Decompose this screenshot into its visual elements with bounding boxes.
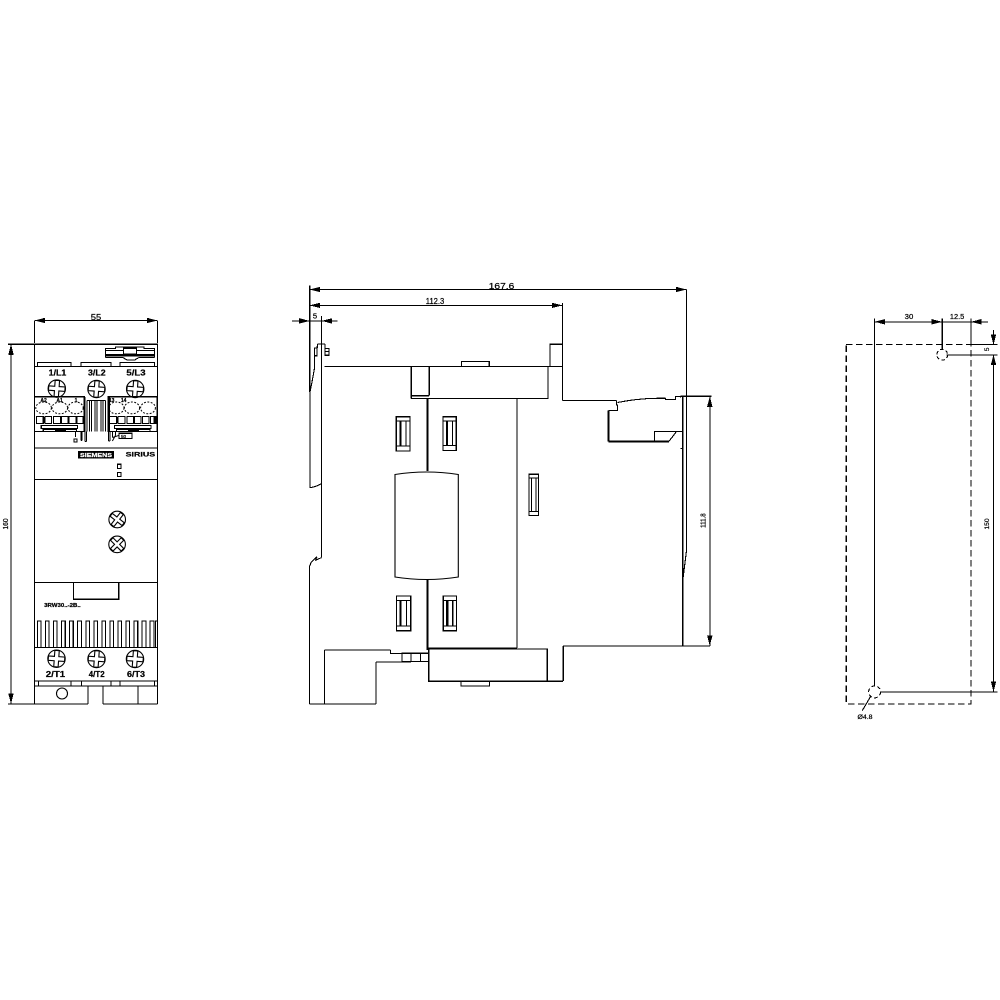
svg-text:150: 150 (984, 518, 991, 529)
svg-text:5: 5 (313, 311, 317, 320)
svg-text:3/L2: 3/L2 (88, 368, 106, 377)
svg-text:2/T1: 2/T1 (46, 670, 66, 679)
svg-text:SIEMENS: SIEMENS (80, 453, 113, 459)
svg-text:112.3: 112.3 (426, 297, 445, 306)
svg-text:6/T3: 6/T3 (127, 670, 146, 679)
svg-text:13: 13 (109, 398, 115, 404)
svg-text:167.6: 167.6 (489, 281, 515, 291)
svg-text:4/T2: 4/T2 (89, 670, 106, 679)
svg-text:111.8: 111.8 (701, 513, 708, 528)
svg-text:50: 50 (121, 434, 127, 439)
svg-text:12.5: 12.5 (950, 314, 965, 321)
svg-text:Ø4.8: Ø4.8 (858, 714, 873, 721)
svg-text:14: 14 (121, 398, 127, 404)
svg-text:55: 55 (91, 313, 102, 322)
svg-text:1/L1: 1/L1 (49, 368, 67, 377)
svg-text:3RW30..-2B..: 3RW30..-2B.. (44, 603, 81, 609)
svg-text:1: 1 (75, 398, 78, 404)
svg-text:5: 5 (984, 347, 991, 351)
svg-text:A2: A2 (40, 398, 47, 404)
svg-text:A1: A1 (56, 398, 63, 404)
svg-text:30: 30 (905, 314, 914, 321)
svg-text:160: 160 (3, 518, 10, 529)
svg-text:SIRIUS: SIRIUS (126, 452, 156, 459)
svg-text:5/L3: 5/L3 (126, 368, 146, 377)
